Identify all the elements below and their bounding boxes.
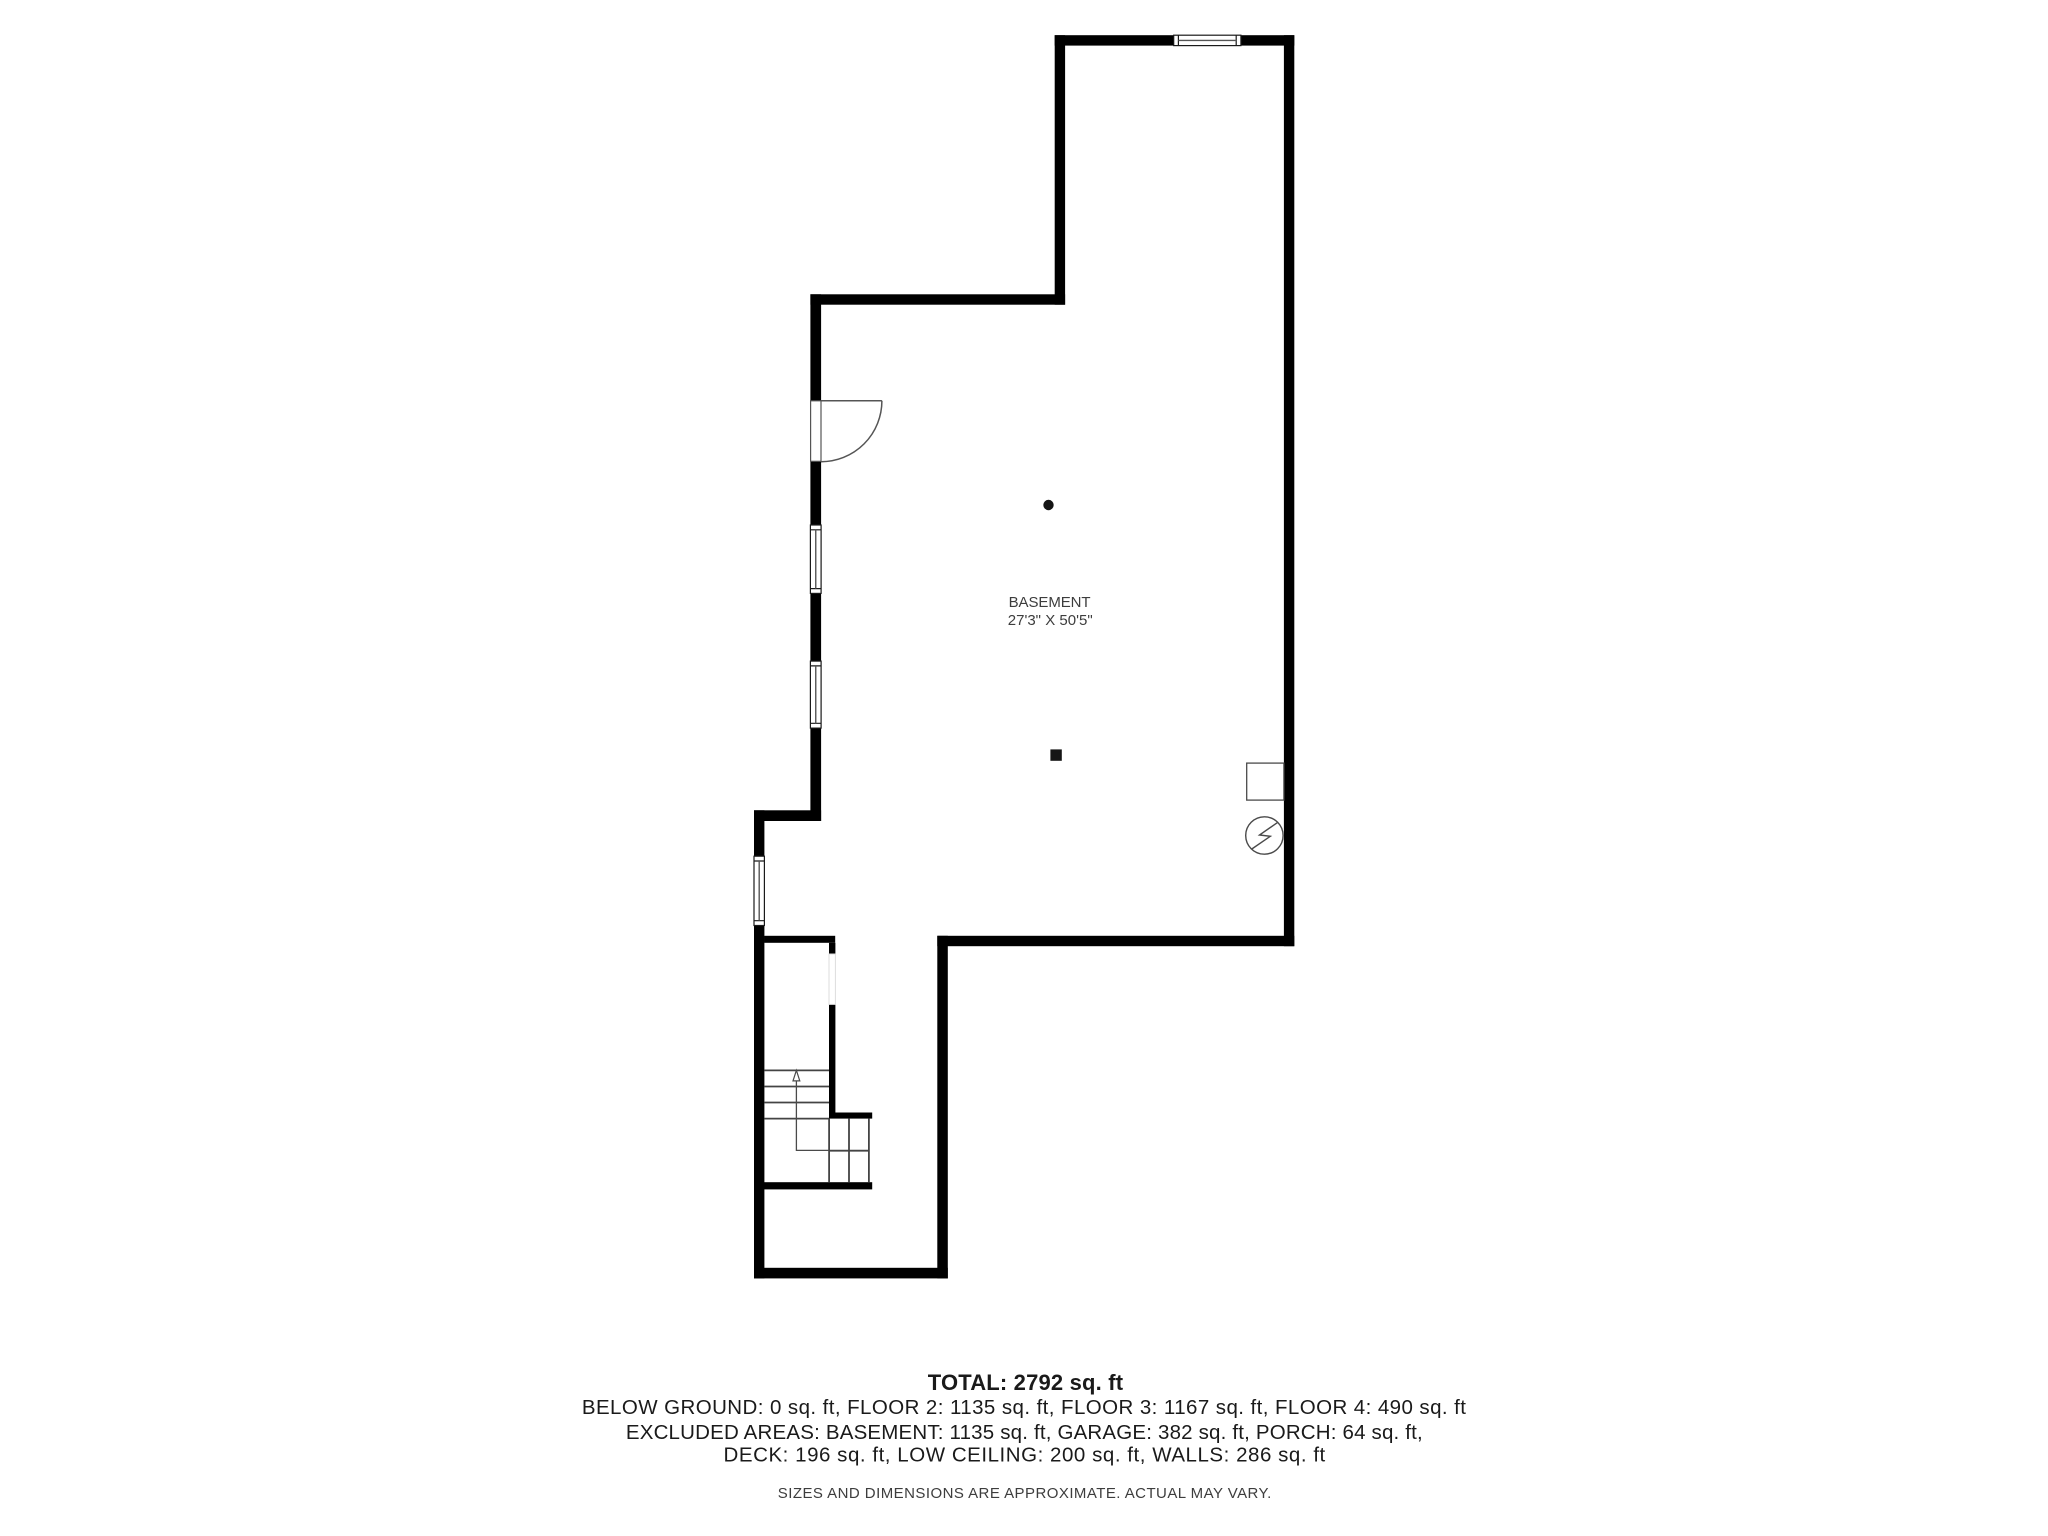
svg-text:BASEMENT: BASEMENT [1009,594,1091,611]
svg-text:27'3" X 50'5": 27'3" X 50'5" [1008,612,1093,629]
svg-text:EXCLUDED AREAS: BASEMENT: 1135: EXCLUDED AREAS: BASEMENT: 1135 sq. ft, G… [626,1421,1423,1444]
svg-text:TOTAL: 2792 sq. ft: TOTAL: 2792 sq. ft [928,1370,1124,1395]
svg-text:DECK: 196 sq. ft, LOW CEILING:: DECK: 196 sq. ft, LOW CEILING: 200 sq. f… [724,1443,1326,1466]
svg-text:SIZES AND DIMENSIONS ARE APPRO: SIZES AND DIMENSIONS ARE APPROXIMATE. AC… [778,1485,1272,1502]
svg-text:BELOW GROUND: 0 sq. ft, FLOOR: BELOW GROUND: 0 sq. ft, FLOOR 2: 1135 sq… [582,1396,1466,1419]
